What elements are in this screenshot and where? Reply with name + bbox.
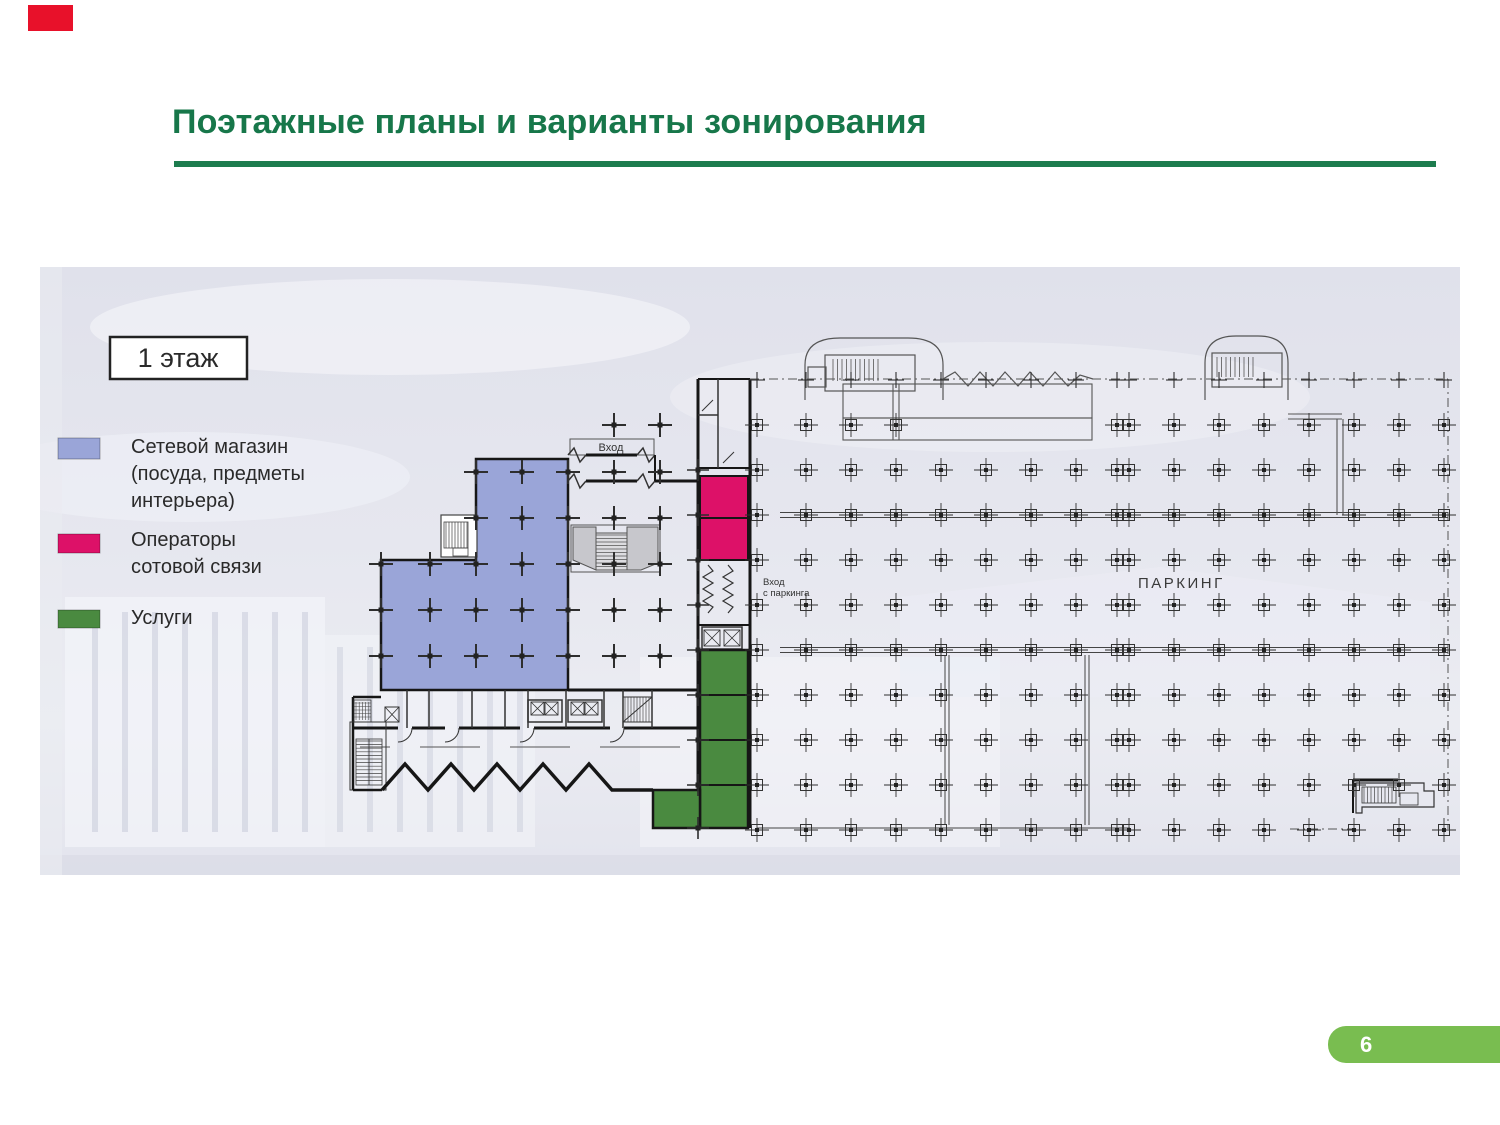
legend-swatch-mobile bbox=[58, 534, 100, 553]
legend-label-services-1: Услуги bbox=[131, 607, 193, 629]
page-number-badge: 6 bbox=[1328, 1026, 1500, 1063]
legend-label-store-2: (посуда, предметы bbox=[131, 463, 305, 485]
legend-label-mobile-2: сотовой связи bbox=[131, 556, 262, 578]
parking-label: ПАРКИНГ bbox=[1138, 575, 1225, 592]
floor-label: 1 этаж bbox=[138, 343, 219, 373]
entrance-label: Вход bbox=[599, 442, 624, 454]
svg-text:Вход: Вход bbox=[763, 577, 785, 588]
entrance-vestibule: Вход bbox=[568, 439, 698, 488]
title-underline bbox=[174, 161, 1436, 167]
legend-swatch-store bbox=[58, 438, 100, 459]
legend-label-mobile-1: Операторы bbox=[131, 529, 236, 551]
entrance-from-parking-label: Вход с паркинга bbox=[763, 577, 810, 599]
floor-label-box: 1 этаж bbox=[110, 337, 247, 379]
legend-swatch-services bbox=[58, 610, 100, 628]
elevators bbox=[528, 700, 602, 722]
side-stair-box bbox=[441, 515, 477, 557]
floor-plan-drawing: 1 этаж Сетевой магазин (посуда, предметы… bbox=[40, 267, 1460, 875]
svg-text:с паркинга: с паркинга bbox=[763, 588, 810, 599]
corner-red-mark bbox=[28, 5, 73, 31]
zone-services-area-ext bbox=[653, 790, 700, 828]
legend-label-store-3: интерьера) bbox=[131, 490, 235, 512]
floor-plan-image: 1 этаж Сетевой магазин (посуда, предметы… bbox=[40, 267, 1460, 875]
page-number: 6 bbox=[1360, 1026, 1372, 1063]
legend-label-store-1: Сетевой магазин bbox=[131, 436, 288, 458]
slide: { "slide": { "title": "Поэтажные планы и… bbox=[0, 0, 1500, 1125]
page-title: Поэтажные планы и варианты зонирования bbox=[172, 103, 927, 142]
